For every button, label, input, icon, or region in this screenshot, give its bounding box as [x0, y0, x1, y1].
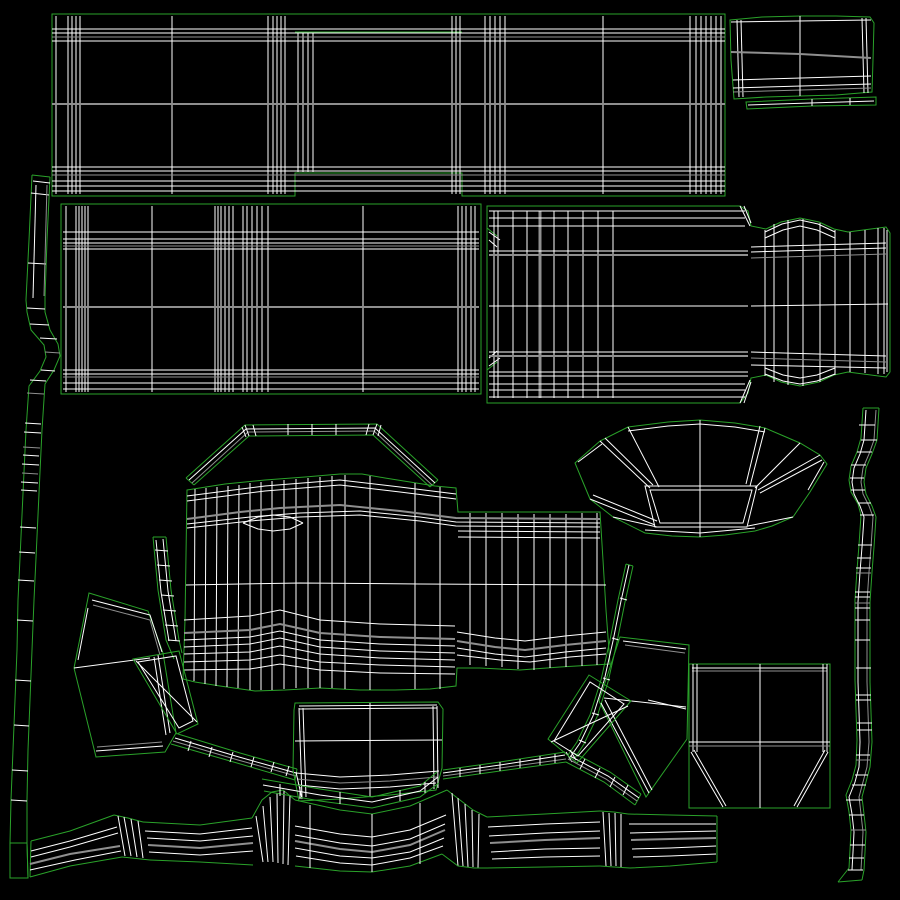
bottom-band-mid-segment-edge — [283, 791, 284, 864]
second-row-right-cylinder-island-edge — [751, 352, 886, 356]
big-center-grid-island-edge — [238, 485, 239, 688]
left-vertical-strip-island-edge — [32, 175, 50, 177]
bottom-band-left-segment-edge — [122, 857, 150, 860]
bowl-octagon-island-edge — [748, 517, 793, 526]
top-right-panel-island-edge — [862, 18, 864, 93]
right-vertical-strip-island — [838, 408, 879, 882]
lower-right-flap-large-edge — [648, 700, 686, 709]
second-row-right-cylinder-island-edge — [751, 243, 886, 247]
right-horizontal-thin-strip — [443, 750, 576, 779]
left-vertical-strip-island-edge — [33, 185, 36, 298]
second-row-right-cylinder-island-edge — [765, 226, 835, 238]
top-band-island — [52, 14, 725, 196]
bottom-band-arc-segment-edge — [478, 814, 479, 868]
bottom-right-square-island-edge — [694, 750, 726, 806]
lower-left-diagonal-strip — [171, 734, 297, 780]
bottom-band-right-segment-a-edge — [600, 866, 630, 868]
left-vertical-strip-island-edge — [20, 527, 36, 528]
bottom-band-left-segment-edge — [138, 821, 143, 858]
top-right-panel-island-edge — [733, 84, 871, 88]
left-vertical-strip-island-edge — [25, 423, 41, 424]
bottom-band-right-segment-b-edge — [632, 846, 716, 849]
big-center-grid-island-edge — [457, 641, 606, 650]
lower-left-diagonal-strip-edge — [173, 741, 296, 776]
bowl-octagon-island — [575, 420, 827, 537]
lower-left-diagonal-strip-edge — [171, 744, 295, 780]
second-row-right-cylinder-island-edge — [751, 254, 886, 258]
lower-left-flap-large-edge — [93, 605, 160, 655]
bottom-band-mid-segment-edge — [263, 806, 268, 862]
lower-left-diagonal-strip-edge — [230, 752, 233, 762]
bent-frame-strip-island-edge — [253, 425, 256, 436]
bottom-band-left-segment — [30, 815, 150, 877]
bottom-center-trapezoid-island-edge — [296, 771, 439, 777]
bottom-band-right-segment-b-edge — [630, 831, 716, 833]
big-center-grid-island-edge — [227, 486, 228, 687]
left-vertical-strip-island-edge — [18, 580, 34, 581]
bottom-right-square-island — [689, 664, 830, 808]
bottom-band-left-segment-edge — [31, 827, 117, 851]
mid-left-ladder-strip-edge — [168, 640, 180, 641]
second-row-right-cylinder-island-edge — [489, 240, 497, 247]
bottom-center-trapezoid-island-edge — [437, 706, 438, 788]
left-vertical-strip-island-edge — [28, 263, 46, 264]
left-vertical-strip-island-edge — [17, 620, 33, 621]
left-vertical-strip-island-edge — [41, 370, 55, 371]
bowl-octagon-island-edge — [578, 444, 602, 462]
left-vertical-strip-island-edge — [15, 680, 31, 681]
bottom-band-mid-segment-edge — [270, 797, 273, 862]
bottom-band-right-segment-b-edge — [633, 854, 716, 857]
bowl-octagon-island-edge — [593, 495, 657, 521]
bottom-band-right-segment-a-edge — [490, 838, 600, 843]
top-right-panel-island-edge — [733, 76, 871, 80]
bent-frame-strip-island-edge — [366, 424, 369, 435]
bottom-center-trapezoid-island-edge — [297, 777, 437, 783]
bottom-band-right-segment-a-edge — [487, 811, 600, 817]
left-vertical-strip-island-edge — [12, 770, 28, 771]
bottom-band-mid-segment-edge — [149, 851, 253, 855]
bottom-band-left-segment-edge — [31, 815, 114, 841]
bottom-band-arc-segment-edge — [465, 804, 468, 867]
second-row-right-cylinder-island-edge — [751, 365, 886, 368]
bottom-band-mid-segment-edge — [143, 818, 252, 825]
big-center-grid-island — [183, 474, 610, 691]
top-right-panel-island-edge — [866, 18, 868, 93]
bottom-band-mid-segment-edge — [256, 816, 263, 862]
left-vertical-strip-island — [10, 175, 60, 878]
bottom-band-arc-segment-edge — [458, 798, 463, 866]
bottom-band-right-segment-a-edge — [609, 813, 611, 866]
bottom-band-left-segment-edge — [124, 817, 131, 856]
big-center-grid-island-edge — [457, 632, 606, 641]
bowl-octagon-island-edge — [650, 490, 752, 523]
bottom-center-trapezoid-island-edge — [299, 708, 302, 798]
uv-wireframe-canvas — [0, 0, 900, 900]
big-center-grid-island-edge — [216, 487, 217, 686]
big-center-grid-island-edge — [457, 654, 606, 662]
bottom-band-right-segment-a-edge — [600, 811, 628, 814]
bowl-octagon-island-edge — [600, 441, 650, 488]
bottom-band-mid-segment-edge — [150, 860, 253, 865]
bent-frame-strip-island-edge — [189, 428, 435, 483]
bottom-band-mid-segment-edge — [147, 836, 253, 841]
second-row-right-cylinder-island-edge — [751, 248, 886, 252]
left-vertical-strip-island-edge — [19, 552, 35, 553]
bottom-band-right-segment-a-edge — [615, 813, 616, 866]
bottom-center-trapezoid-island-edge — [295, 740, 442, 741]
left-vertical-strip-island-edge — [14, 725, 29, 726]
lower-left-flap-large-edge — [78, 608, 88, 660]
bowl-octagon-island-edge — [575, 420, 827, 537]
left-vertical-strip-island-edge — [11, 800, 27, 801]
bottom-band-right-segment-a-edge — [488, 822, 600, 827]
right-diagonal-thin-strip-edge — [566, 762, 635, 805]
lower-right-flap-large-edge — [623, 641, 686, 649]
bottom-band-arc-segment — [295, 790, 487, 872]
bottom-band-left-segment-edge — [30, 846, 120, 864]
bottom-right-square-island-edge — [691, 752, 723, 807]
bottom-band-right-segment-a-edge — [603, 812, 606, 866]
bottom-band-mid-segment-edge — [145, 828, 252, 834]
bottom-right-square-island-edge — [794, 750, 825, 806]
bottom-thin-arc-strip — [262, 772, 439, 808]
top-right-panel-island-edge — [733, 88, 871, 92]
right-diagonal-thin-strip — [566, 752, 641, 805]
right-curved-pillar-strip-edge — [571, 565, 629, 756]
lower-left-diagonal-strip-edge — [175, 738, 296, 773]
right-diagonal-thin-strip-edge — [568, 759, 637, 801]
lower-left-flap-large — [74, 593, 176, 757]
big-center-grid-island-edge — [458, 537, 600, 538]
bottom-band-arc-segment-edge — [472, 810, 473, 867]
big-center-grid-island-edge — [186, 583, 606, 585]
bottom-band-mid-segment-edge — [277, 793, 278, 863]
big-center-grid-island-edge — [458, 531, 600, 532]
big-center-grid-island-edge — [187, 485, 456, 501]
bowl-octagon-island-edge — [628, 427, 659, 487]
bottom-band-mid-segment-edge — [288, 795, 290, 865]
lower-right-flap-small-edge — [548, 675, 631, 763]
lower-left-flap-large-edge — [97, 742, 162, 747]
mid-left-ladder-strip — [153, 537, 182, 659]
bottom-band-right-segment-a — [487, 811, 630, 868]
lower-right-flap-large-edge — [625, 645, 685, 653]
bottom-band-mid-segment-edge — [252, 790, 295, 818]
lower-right-flap-small-edge — [554, 682, 624, 756]
second-row-left-island — [61, 204, 481, 394]
left-vertical-strip-island-edge — [27, 308, 45, 309]
big-center-grid-island-edge — [243, 523, 303, 531]
bottom-band-right-segment-b-edge — [630, 862, 717, 868]
top-right-panel-island-edge — [731, 20, 871, 22]
top-right-sliver-island — [746, 97, 876, 109]
bottom-center-trapezoid-island-edge — [299, 708, 437, 709]
bowl-octagon-island-edge — [628, 424, 765, 432]
top-right-panel-island — [730, 16, 874, 99]
right-vertical-strip-island-edge — [838, 880, 862, 882]
lower-left-flap-small — [133, 651, 198, 734]
top-right-panel-island-edge — [741, 20, 743, 97]
bottom-band-left-segment-edge — [131, 819, 137, 857]
bottom-band-right-segment-a-edge — [491, 848, 600, 852]
top-right-panel-island-edge — [731, 52, 871, 58]
uv-layout-stage — [0, 0, 900, 900]
bottom-right-square-island-edge — [797, 752, 828, 807]
bottom-band-left-segment-edge — [30, 841, 31, 877]
left-vertical-strip-island-edge — [24, 432, 41, 433]
bottom-band-right-segment-a-edge — [492, 856, 600, 859]
bottom-band-arc-segment-edge — [295, 824, 445, 846]
second-row-right-cylinder-island-edge — [751, 358, 886, 362]
left-vertical-strip-island-edge — [27, 393, 44, 394]
left-vertical-strip-island-edge — [30, 324, 49, 325]
right-curved-pillar-strip — [568, 564, 633, 758]
lower-left-flap-small-edge — [133, 651, 198, 734]
left-vertical-strip-island-edge — [23, 455, 39, 456]
bottom-band-right-segment-b-edge — [631, 838, 716, 840]
second-row-right-cylinder-island-edge — [765, 368, 835, 378]
bottom-center-trapezoid-island-edge — [299, 705, 437, 706]
right-curved-pillar-strip-edge — [626, 564, 633, 566]
left-vertical-strip-island-edge — [33, 181, 50, 183]
bottom-band-left-segment-edge — [118, 816, 125, 856]
bottom-band-mid-segment — [143, 790, 295, 865]
bottom-center-trapezoid-island-edge — [433, 706, 434, 789]
left-vertical-strip-island-edge — [10, 843, 28, 878]
bottom-band-arc-segment-edge — [452, 793, 458, 866]
bottom-center-trapezoid-island-edge — [298, 783, 436, 789]
lower-right-flap-large-edge — [601, 703, 649, 793]
bottom-band-right-segment-b-edge — [628, 814, 717, 816]
lower-left-diagonal-strip-edge — [251, 757, 254, 767]
right-vertical-strip-island-edge — [862, 408, 879, 880]
bottom-band-mid-segment-edge — [148, 843, 253, 848]
bottom-thin-arc-strip-edge — [264, 783, 439, 808]
top-right-sliver-island-edge — [748, 101, 874, 105]
big-center-grid-island-edge — [187, 511, 600, 524]
bottom-center-trapezoid-island-edge — [303, 708, 306, 797]
top-right-panel-island-edge — [737, 20, 739, 97]
bent-frame-strip-island — [186, 424, 438, 487]
bottom-band-right-segment-a-edge — [489, 831, 600, 836]
left-vertical-strip-island-edge — [45, 352, 60, 353]
lower-right-flap-small — [548, 675, 631, 763]
bottom-band-right-segment-a-edge — [487, 866, 600, 868]
right-vertical-strip-island-edge — [838, 408, 863, 882]
bottom-band-right-segment-b — [628, 814, 717, 868]
bowl-octagon-island-edge — [755, 443, 800, 488]
second-row-right-cylinder-island — [487, 206, 890, 403]
bowl-octagon-island-edge — [645, 486, 757, 527]
bottom-band-arc-segment-edge — [442, 854, 487, 868]
